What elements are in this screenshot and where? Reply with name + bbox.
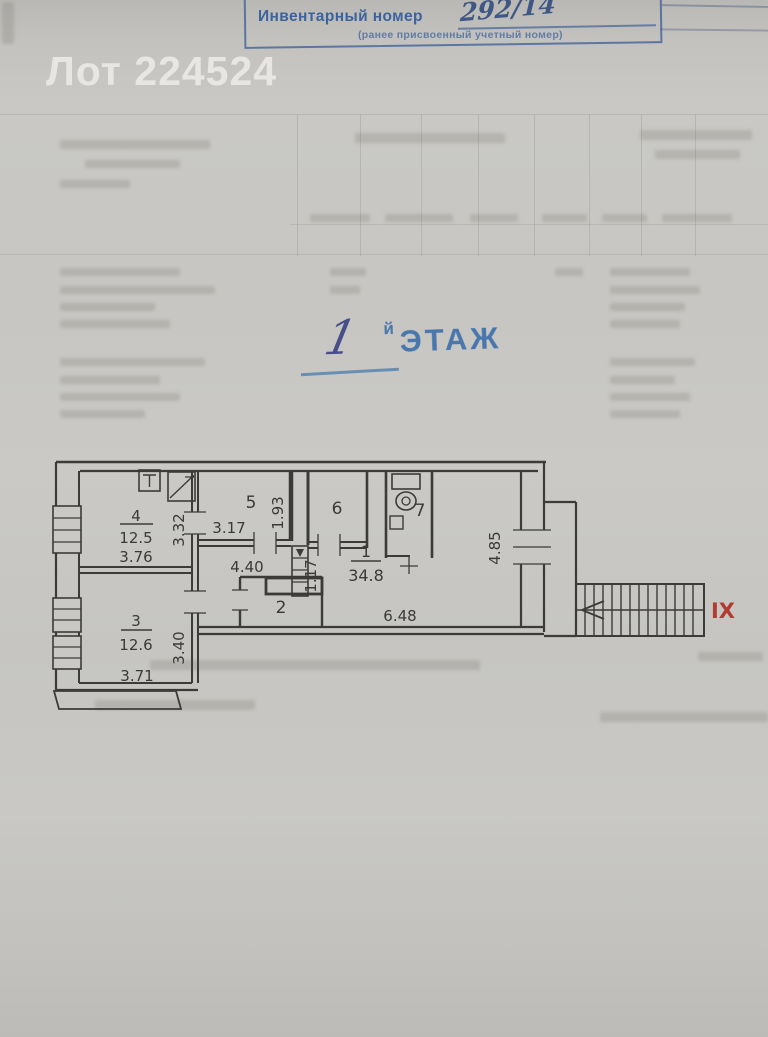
room-7-number: 7 [415, 501, 426, 521]
room-5-number: 5 [246, 493, 257, 513]
dim-room1-width: 6.48 [383, 607, 416, 625]
dim-corridor-width: 4.40 [230, 558, 263, 576]
window-symbol [53, 598, 81, 632]
plan-labels: 4 12.5 3.76 3.32 3 12.6 3.71 3.40 5 3.17… [119, 493, 735, 685]
room-2-number: 2 [276, 598, 287, 618]
dim-room3-width: 3.71 [120, 667, 153, 685]
floor-plan-drawing: 4 12.5 3.76 3.32 3 12.6 3.71 3.40 5 3.17… [0, 0, 768, 1037]
dim-room4-height: 3.32 [170, 513, 188, 546]
room-6-number: 6 [332, 499, 343, 519]
room-3-number: 3 [131, 612, 141, 630]
dim-room1-height: 4.85 [486, 531, 504, 564]
window-symbols [53, 506, 81, 669]
dim-room5-height: 1.93 [269, 496, 287, 529]
dim-duct-height: 1.17 [302, 559, 320, 592]
dim-room3-height: 3.40 [170, 631, 188, 664]
stair-section-label: IX [711, 599, 735, 623]
room-4-area: 12.5 [119, 529, 152, 547]
room-4-number: 4 [131, 507, 141, 525]
sink-icon [390, 516, 403, 529]
duct-arrow-icon [296, 549, 304, 557]
vent-symbols [139, 470, 195, 501]
porch-step [54, 691, 181, 709]
window-symbol [53, 636, 81, 669]
staircase [576, 584, 704, 636]
dim-room4-width: 3.76 [119, 548, 152, 566]
room-3-area: 12.6 [119, 636, 152, 654]
room-1-area: 34.8 [348, 566, 384, 585]
room-1-number: 1 [361, 542, 371, 561]
dim-room5-width: 3.17 [212, 519, 245, 537]
